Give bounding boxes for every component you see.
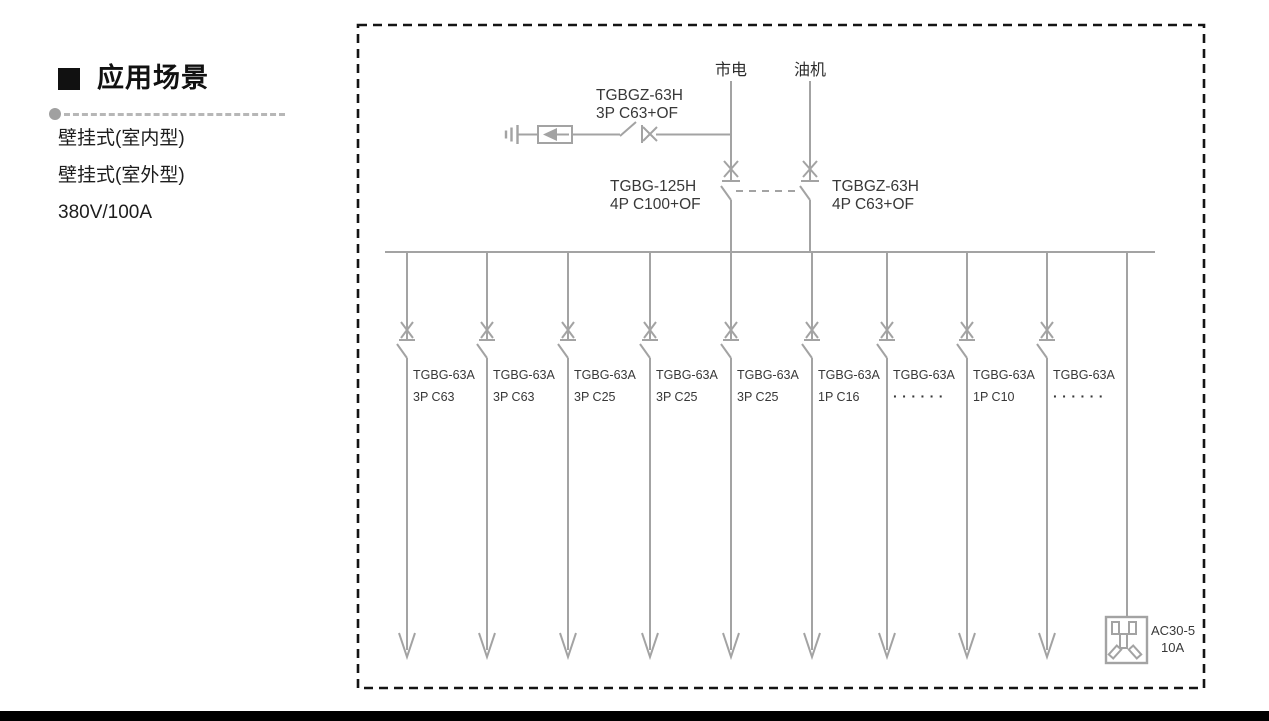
branch-breaker-symbol — [802, 252, 820, 657]
branch-rating-label: 3P C63 — [493, 390, 535, 404]
branch: TGBG-63A3P C63 — [397, 252, 475, 657]
spd-breaker-symbol — [572, 122, 731, 143]
branch-rating-label: ······ — [893, 388, 948, 404]
generator-label: 油机 — [794, 61, 826, 79]
generator-breaker-label: TGBGZ-63H 4P C63+OF — [832, 178, 919, 213]
branch-model-label: TGBG-63A — [818, 368, 880, 382]
branch-breaker-symbol — [1037, 252, 1055, 657]
branch-rating-label: 3P C25 — [656, 390, 698, 404]
spd-arrester-icon — [538, 126, 572, 143]
mains-breaker-label: TGBG-125H 4P C100+OF — [610, 178, 701, 213]
outgoing-branches: TGBG-63A3P C63TGBG-63A3P C63TGBG-63A3P C… — [397, 252, 1115, 657]
mains-power-label: 市电 — [715, 61, 747, 79]
branch: TGBG-63A······ — [1037, 252, 1115, 657]
generator-incomer-breaker — [800, 81, 819, 252]
branch-model-label: TGBG-63A — [737, 368, 799, 382]
branch-model-label: TGBG-63A — [973, 368, 1035, 382]
branch-breaker-symbol — [477, 252, 495, 657]
socket-rating-label: 10A — [1161, 640, 1184, 655]
branch-rating-label: 3P C25 — [574, 390, 616, 404]
branch-rating-label: 3P C25 — [737, 390, 779, 404]
branch: TGBG-63A3P C25 — [721, 252, 799, 657]
page: 应用场景 壁挂式(室内型) 壁挂式(室外型) 380V/100A 市电 油机 — [0, 0, 1269, 721]
branch: TGBG-63A3P C25 — [558, 252, 636, 657]
svg-text:3P C63+OF: 3P C63+OF — [596, 105, 678, 122]
branch-breaker-symbol — [397, 252, 415, 657]
svg-text:TGBG-125H: TGBG-125H — [610, 178, 696, 195]
branch-rating-label: 1P C16 — [818, 390, 860, 404]
svg-text:TGBGZ-63H: TGBGZ-63H — [596, 87, 683, 104]
branch-breaker-symbol — [640, 252, 658, 657]
earth-icon — [506, 125, 518, 144]
branch-rating-label: 1P C10 — [973, 390, 1015, 404]
socket-icon — [1106, 617, 1147, 663]
branch-breaker-symbol — [721, 252, 739, 657]
branch: TGBG-63A······ — [877, 252, 955, 657]
svg-text:4P C100+OF: 4P C100+OF — [610, 196, 701, 213]
branch-breaker-symbol — [558, 252, 576, 657]
single-line-diagram: 市电 油机 TGBGZ-63H 3P C — [0, 0, 1269, 721]
socket-branch: AC30-5 10A — [1106, 252, 1195, 663]
svg-text:TGBGZ-63H: TGBGZ-63H — [832, 178, 919, 195]
branch: TGBG-63A1P C10 — [957, 252, 1035, 657]
branch-rating-label: 3P C63 — [413, 390, 455, 404]
spd-breaker-label: TGBGZ-63H 3P C63+OF — [596, 87, 683, 122]
branch-model-label: TGBG-63A — [893, 368, 955, 382]
bottom-bar — [0, 711, 1269, 721]
branch-model-label: TGBG-63A — [493, 368, 555, 382]
socket-model-label: AC30-5 — [1151, 623, 1195, 638]
spd-branch — [506, 122, 731, 144]
branch-breaker-symbol — [877, 252, 895, 657]
branch: TGBG-63A3P C25 — [640, 252, 718, 657]
branch-breaker-symbol — [957, 252, 975, 657]
branch: TGBG-63A1P C16 — [802, 252, 880, 657]
mains-incomer-breaker — [721, 81, 740, 252]
branch-model-label: TGBG-63A — [413, 368, 475, 382]
svg-text:4P C63+OF: 4P C63+OF — [832, 196, 914, 213]
branch-model-label: TGBG-63A — [1053, 368, 1115, 382]
branch: TGBG-63A3P C63 — [477, 252, 555, 657]
branch-rating-label: ······ — [1053, 388, 1108, 404]
branch-model-label: TGBG-63A — [656, 368, 718, 382]
branch-model-label: TGBG-63A — [574, 368, 636, 382]
